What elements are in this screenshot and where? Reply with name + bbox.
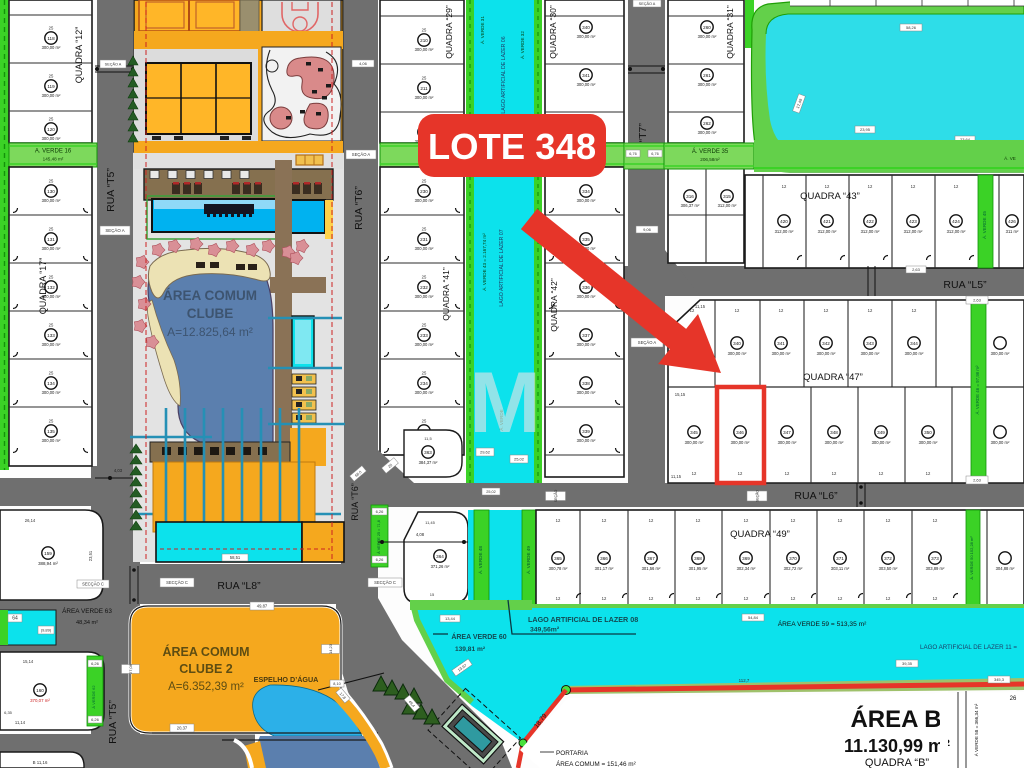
svg-text:25: 25 (49, 26, 54, 31)
svg-text:300,00 m²: 300,00 m² (42, 342, 61, 347)
svg-text:300,00 m²: 300,00 m² (415, 47, 434, 52)
svg-text:Á. VERDE 46 = 97,98 m²: Á. VERDE 46 = 97,98 m² (975, 365, 980, 414)
svg-text:302,72 m²: 302,72 m² (784, 566, 803, 571)
svg-text:4,03: 4,03 (114, 468, 123, 473)
svg-text:2,63: 2,63 (973, 298, 982, 303)
svg-text:302,34 m²: 302,34 m² (737, 566, 756, 571)
svg-text:300,00 m²: 300,00 m² (42, 198, 61, 203)
svg-text:311 m²: 311 m² (1006, 229, 1019, 234)
svg-text:6,76: 6,76 (651, 152, 658, 156)
svg-text:300,00 m²: 300,00 m² (577, 390, 596, 395)
svg-text:ÁREA COMUM: ÁREA COMUM (162, 644, 249, 659)
svg-text:RUA “T6”: RUA “T6” (350, 483, 360, 521)
svg-text:300,00 m²: 300,00 m² (772, 351, 791, 356)
svg-text:300,00 m²: 300,00 m² (825, 440, 844, 445)
svg-text:12: 12 (735, 308, 740, 313)
svg-text:341: 341 (582, 73, 590, 78)
svg-text:300,00 m²: 300,00 m² (415, 246, 434, 251)
svg-text:312,00 m²: 312,00 m² (947, 229, 966, 234)
svg-text:RUA “T5”: RUA “T5” (107, 700, 119, 744)
svg-text:LAGO ARTIFICIAL DE LAZER 11 =: LAGO ARTIFICIAL DE LAZER 11 = (920, 644, 1017, 651)
svg-text:M: M (469, 355, 541, 451)
svg-text:RUA “L6”: RUA “L6” (794, 490, 838, 502)
svg-text:12: 12 (556, 596, 561, 601)
svg-text:RUA “T6”: RUA “T6” (353, 186, 365, 230)
svg-text:300,00 m²: 300,00 m² (991, 440, 1010, 445)
svg-text:12: 12 (832, 471, 837, 476)
svg-text:300,00 m²: 300,00 m² (42, 390, 61, 395)
svg-text:304,88 m²: 304,88 m² (996, 566, 1015, 571)
svg-text:349: 349 (877, 430, 885, 435)
svg-text:PORTARIA: PORTARIA (556, 750, 589, 757)
svg-text:118: 118 (47, 36, 55, 41)
svg-text:300,00 m²: 300,00 m² (698, 82, 717, 87)
svg-text:373: 373 (931, 556, 939, 561)
svg-text:261: 261 (703, 73, 711, 78)
svg-text:312,00 m²: 312,00 m² (818, 229, 837, 234)
svg-text:12: 12 (825, 184, 830, 189)
svg-text:25,02: 25,02 (514, 457, 525, 462)
svg-text:300,00 m²: 300,00 m² (905, 351, 924, 356)
svg-text:230: 230 (420, 189, 428, 194)
svg-text:343: 343 (866, 341, 874, 346)
svg-text:Á. VERDE 32: Á. VERDE 32 (519, 31, 525, 59)
svg-text:300,00 m²: 300,00 m² (698, 130, 717, 135)
svg-text:25: 25 (422, 28, 427, 33)
svg-text:363: 363 (424, 450, 432, 455)
svg-text:SEÇÃO A: SEÇÃO A (638, 340, 657, 345)
svg-text:12: 12 (602, 518, 607, 523)
svg-text:306,37 m²: 306,37 m² (681, 203, 700, 208)
svg-text:12: 12 (912, 308, 917, 313)
svg-text:300,00 m²: 300,00 m² (919, 440, 938, 445)
svg-text:SEÇÃO: SEÇÃO (553, 490, 558, 503)
svg-text:12: 12 (868, 308, 873, 313)
svg-text:160: 160 (36, 688, 44, 693)
svg-text:A=6.352,39 m²: A=6.352,39 m² (168, 681, 244, 693)
svg-text:25: 25 (49, 74, 54, 79)
svg-text:345,3: 345,3 (994, 677, 1005, 682)
svg-text:300,00 m²: 300,00 m² (415, 198, 434, 203)
svg-text:300,00 m²: 300,00 m² (778, 440, 797, 445)
svg-text:12: 12 (838, 596, 843, 601)
svg-text:159: 159 (44, 551, 52, 556)
svg-text:262: 262 (703, 121, 711, 126)
svg-text:423: 423 (909, 219, 917, 224)
svg-text:4,08: 4,08 (416, 532, 425, 537)
svg-text:RUA “L5”: RUA “L5” (943, 279, 987, 291)
svg-text:QUADRA “31”: QUADRA “31” (725, 5, 735, 59)
svg-text:300,00 m²: 300,00 m² (415, 95, 434, 100)
svg-text:372: 372 (884, 556, 892, 561)
svg-text:300,00 m²: 300,00 m² (872, 440, 891, 445)
svg-text:301,56 m²: 301,56 m² (642, 566, 661, 571)
svg-text:300,00 m²: 300,00 m² (577, 294, 596, 299)
svg-text:232: 232 (420, 285, 428, 290)
svg-text:303,50 m²: 303,50 m² (879, 566, 898, 571)
svg-text:300,00 m²: 300,00 m² (415, 342, 434, 347)
svg-text:339: 339 (582, 429, 590, 434)
svg-text:316: 316 (686, 194, 694, 199)
svg-text:QUADRA “29”: QUADRA “29” (444, 5, 454, 59)
svg-text:13,44: 13,44 (445, 616, 456, 621)
svg-text:300,00 m²: 300,00 m² (415, 390, 434, 395)
svg-text:421: 421 (823, 219, 831, 224)
svg-text:6,35: 6,35 (4, 710, 13, 715)
svg-text:420: 420 (780, 219, 788, 224)
svg-text:300,00 m²: 300,00 m² (42, 93, 61, 98)
svg-text:422: 422 (866, 219, 874, 224)
svg-text:130: 130 (47, 189, 55, 194)
svg-text:300,00 m²: 300,00 m² (991, 351, 1010, 356)
svg-text:9,06: 9,06 (643, 227, 652, 232)
svg-text:6,26: 6,26 (376, 509, 385, 514)
svg-text:QUADRA “41”: QUADRA “41” (441, 267, 451, 321)
svg-text:342: 342 (822, 341, 830, 346)
svg-text:303,11 m²: 303,11 m² (831, 566, 850, 571)
svg-text:336: 336 (582, 285, 590, 290)
svg-text:367: 367 (647, 556, 655, 561)
svg-text:11,15: 11,15 (671, 474, 682, 479)
svg-text:341: 341 (777, 341, 785, 346)
svg-text:424: 424 (952, 219, 960, 224)
svg-text:12: 12 (696, 596, 701, 601)
svg-text:ÁREA VERDE 60: ÁREA VERDE 60 (451, 632, 506, 641)
svg-text:11,5: 11,5 (424, 436, 432, 441)
svg-text:64: 64 (12, 616, 18, 622)
svg-text:12: 12 (782, 184, 787, 189)
svg-text:388,94 m²: 388,94 m² (38, 561, 58, 566)
svg-text:11,14: 11,14 (15, 720, 26, 725)
svg-text:12: 12 (692, 471, 697, 476)
svg-text:12: 12 (779, 308, 784, 313)
svg-text:12: 12 (838, 518, 843, 523)
svg-text:ÁREA VERDE 63: ÁREA VERDE 63 (62, 606, 112, 615)
svg-text:ÁREA VERDE 59 = 513,35 m²: ÁREA VERDE 59 = 513,35 m² (778, 619, 867, 628)
svg-text:6,26: 6,26 (376, 557, 385, 562)
svg-text:300,00 m²: 300,00 m² (728, 351, 747, 356)
svg-text:ÁREA B: ÁREA B (850, 705, 941, 733)
svg-text:312,00 m²: 312,00 m² (718, 203, 737, 208)
svg-text:11,45: 11,45 (425, 520, 435, 525)
svg-text:300,00 m²: 300,00 m² (577, 34, 596, 39)
svg-text:12: 12 (791, 518, 796, 523)
svg-text:Á. VERDE 49: Á. VERDE 49 (525, 546, 531, 574)
svg-text:QUADRA “12”: QUADRA “12” (74, 27, 84, 84)
svg-text:LOTE 348: LOTE 348 (428, 126, 596, 167)
svg-text:300,00 m²: 300,00 m² (577, 82, 596, 87)
svg-text:54,84: 54,84 (748, 615, 759, 620)
svg-text:347: 347 (783, 430, 791, 435)
svg-text:QUADRA “30”: QUADRA “30” (548, 5, 558, 59)
svg-text:LAGO ARTIFICIAL DE LAZER 06: LAGO ARTIFICIAL DE LAZER 06 (501, 36, 507, 113)
svg-text:Á VERDE 58 = 366,34 m²: Á VERDE 58 = 366,34 m² (973, 703, 979, 756)
svg-text:25: 25 (49, 179, 54, 184)
svg-text:134: 134 (47, 381, 55, 386)
svg-text:303,89 m²: 303,89 m² (926, 566, 945, 571)
svg-text:346: 346 (736, 430, 744, 435)
svg-text:25,02: 25,02 (486, 490, 496, 494)
svg-text:SEÇÃO A: SEÇÃO A (639, 1, 656, 6)
svg-text:12: 12 (824, 308, 829, 313)
svg-text:300,00 m²: 300,00 m² (415, 294, 434, 299)
svg-text:Á VERDE 25 = 71,8: Á VERDE 25 = 71,8 (377, 520, 381, 554)
svg-text:300,00 m²: 300,00 m² (42, 45, 61, 50)
svg-text:15,14: 15,14 (23, 659, 34, 664)
svg-text:233: 233 (420, 333, 428, 338)
svg-text:48,34 m²: 48,34 m² (76, 620, 98, 626)
svg-text:Á. VERDE 31: Á. VERDE 31 (479, 16, 485, 44)
svg-text:25: 25 (422, 419, 427, 424)
svg-text:(9,89): (9,89) (41, 628, 52, 633)
svg-text:12: 12 (911, 184, 916, 189)
svg-text:12: 12 (649, 596, 654, 601)
svg-text:A=12.825,64 m²: A=12.825,64 m² (167, 325, 253, 339)
svg-text:119: 119 (47, 84, 55, 89)
svg-text:Á. VERDE 50 152,28 m²: Á. VERDE 50 152,28 m² (969, 536, 974, 580)
svg-text:426: 426 (1008, 219, 1016, 224)
svg-text:12: 12 (933, 518, 938, 523)
svg-text:231: 231 (420, 237, 428, 242)
svg-text:15,15: 15,15 (675, 392, 686, 397)
svg-text:364: 364 (436, 554, 444, 559)
svg-text:11,15: 11,15 (695, 304, 706, 309)
svg-text:301,95 m²: 301,95 m² (689, 566, 708, 571)
svg-text:25: 25 (49, 323, 54, 328)
svg-text:300,00 m²: 300,00 m² (698, 34, 717, 39)
svg-text:SEÇÃO A: SEÇÃO A (105, 62, 122, 67)
svg-text:Á. VERDE 48: Á. VERDE 48 (477, 546, 483, 574)
svg-text:260: 260 (703, 25, 711, 30)
svg-text:349,56m²: 349,56m² (530, 627, 560, 634)
svg-text:350: 350 (924, 430, 932, 435)
svg-text:312,00 m²: 312,00 m² (861, 229, 880, 234)
svg-text:300,00 m²: 300,00 m² (731, 440, 750, 445)
svg-text:348: 348 (830, 430, 838, 435)
svg-text:300,00 m²: 300,00 m² (42, 246, 61, 251)
svg-text:12: 12 (649, 518, 654, 523)
svg-text:335: 335 (582, 237, 590, 242)
svg-text:25: 25 (49, 227, 54, 232)
svg-text:139,81 m²: 139,81 m² (455, 646, 486, 653)
svg-text:12: 12 (886, 596, 891, 601)
svg-text:300,00 m²: 300,00 m² (685, 440, 704, 445)
svg-text:338: 338 (582, 381, 590, 386)
svg-text:A. VERDE 16: A. VERDE 16 (35, 149, 72, 155)
svg-text:SEÇÃO: SEÇÃO (755, 490, 760, 502)
svg-text:Á. VERDE 43 = 2.167,74 m²: Á. VERDE 43 = 2.167,74 m² (481, 233, 487, 291)
svg-text:QUADRA “43”: QUADRA “43” (800, 191, 860, 202)
svg-text:14,23: 14,23 (328, 643, 333, 654)
svg-text:26: 26 (1010, 696, 1017, 702)
svg-text:369: 369 (742, 556, 750, 561)
svg-text:23,51: 23,51 (88, 550, 93, 561)
svg-text:340: 340 (733, 341, 741, 346)
svg-text:368: 368 (694, 556, 702, 561)
svg-text:SEÇÃO A: SEÇÃO A (352, 152, 371, 157)
svg-text:315: 315 (723, 194, 731, 199)
svg-text:25: 25 (49, 419, 54, 424)
svg-text:12: 12 (933, 596, 938, 601)
svg-text:ESPELHO D’ÁGUA: ESPELHO D’ÁGUA (254, 675, 319, 684)
svg-text:300,78 m²: 300,78 m² (549, 566, 568, 571)
svg-text:39,35: 39,35 (902, 661, 913, 666)
svg-text:210: 210 (420, 38, 428, 43)
svg-text:300,00 m²: 300,00 m² (42, 136, 61, 141)
svg-text:12: 12 (556, 518, 561, 523)
svg-text:300,00 m²: 300,00 m² (577, 438, 596, 443)
svg-text:12: 12 (868, 184, 873, 189)
svg-text:211: 211 (420, 86, 428, 91)
svg-text:12: 12 (879, 471, 884, 476)
svg-text:131: 131 (47, 237, 55, 242)
svg-text:25: 25 (49, 117, 54, 122)
svg-text:135: 135 (47, 429, 55, 434)
svg-text:Á. VE: Á. VE (1004, 155, 1016, 161)
svg-text:25: 25 (422, 179, 427, 184)
svg-text:SECÇÃO C: SECÇÃO C (166, 580, 188, 585)
svg-text:371,26 m²: 371,26 m² (431, 564, 450, 569)
svg-text:QUADRA “B”: QUADRA “B” (865, 757, 930, 768)
svg-text:334: 334 (582, 189, 590, 194)
svg-text:SECÇÃO C: SECÇÃO C (82, 582, 104, 587)
svg-text:25: 25 (422, 323, 427, 328)
svg-text:12: 12 (744, 518, 749, 523)
svg-text:SEÇÃO A: SEÇÃO A (105, 228, 124, 233)
svg-text:370: 370 (789, 556, 797, 561)
svg-text:366: 366 (600, 556, 608, 561)
svg-text:12: 12 (886, 518, 891, 523)
svg-text:112,7: 112,7 (739, 678, 750, 683)
svg-text:58,51: 58,51 (230, 555, 241, 560)
svg-text:25: 25 (49, 275, 54, 280)
svg-text:12: 12 (738, 471, 743, 476)
svg-text:CLUBE 2: CLUBE 2 (179, 662, 233, 676)
svg-text:206,58m²: 206,58m² (700, 157, 720, 162)
svg-text:LAGO ARTIFICIAL DE LAZER 08: LAGO ARTIFICIAL DE LAZER 08 (528, 615, 638, 624)
svg-text:365: 365 (554, 556, 562, 561)
svg-text:301,17 m²: 301,17 m² (595, 566, 614, 571)
svg-text:25: 25 (422, 227, 427, 232)
svg-text:312,00 m²: 312,00 m² (775, 229, 794, 234)
svg-text:145,48 m²: 145,48 m² (43, 157, 64, 162)
svg-text:6,26: 6,26 (91, 661, 100, 666)
svg-text:300,00 m²: 300,00 m² (577, 342, 596, 347)
svg-text:132: 132 (47, 285, 55, 290)
svg-text:QUADRA “49”: QUADRA “49” (730, 529, 790, 540)
svg-text:26,14: 26,14 (25, 518, 36, 523)
svg-text:120: 120 (47, 127, 55, 132)
svg-text:Á. VERDE 35: Á. VERDE 35 (692, 148, 729, 155)
svg-text:ÁREA COMUM: ÁREA COMUM (163, 288, 257, 303)
svg-text:QUADRA “42”: QUADRA “42” (549, 278, 559, 332)
svg-text:2,63: 2,63 (912, 267, 921, 272)
svg-text:12: 12 (785, 471, 790, 476)
svg-text:312,00 m²: 312,00 m² (904, 229, 923, 234)
svg-text:Á. VERDE 45: Á. VERDE 45 (981, 211, 987, 239)
svg-text:345: 345 (690, 430, 698, 435)
svg-text:337: 337 (582, 333, 590, 338)
svg-text:12: 12 (954, 184, 959, 189)
svg-text:12: 12 (696, 518, 701, 523)
svg-text:RUA “T5”: RUA “T5” (105, 168, 117, 212)
svg-text:25: 25 (49, 371, 54, 376)
svg-text:300,00 m²: 300,00 m² (817, 351, 836, 356)
svg-text:300,00 m²: 300,00 m² (42, 438, 61, 443)
svg-text:344: 344 (910, 341, 918, 346)
svg-text:12: 12 (602, 596, 607, 601)
svg-text:300,00 m²: 300,00 m² (577, 198, 596, 203)
svg-text:371: 371 (836, 556, 844, 561)
svg-text:23,95: 23,95 (860, 127, 871, 132)
svg-text:RUA “L8”: RUA “L8” (217, 580, 261, 592)
svg-text:8,10: 8,10 (333, 682, 340, 686)
svg-text:25: 25 (422, 371, 427, 376)
svg-text:25: 25 (422, 76, 427, 81)
svg-text:SECÇÃO C: SECÇÃO C (374, 580, 396, 585)
svg-text:QUADRA “47”: QUADRA “47” (803, 372, 863, 383)
svg-text:LAGO ARTIFICIAL DE LAZER 07: LAGO ARTIFICIAL DE LAZER 07 (499, 229, 505, 306)
svg-text:340: 340 (582, 25, 590, 30)
svg-text:ÁREA COMUM = 151,46 m²: ÁREA COMUM = 151,46 m² (556, 759, 636, 768)
svg-text:B 11,16: B 11,16 (33, 760, 48, 765)
svg-text:370,07 m²: 370,07 m² (30, 698, 50, 703)
svg-text:Á VERDE 62: Á VERDE 62 (91, 685, 96, 709)
svg-text:25: 25 (422, 275, 427, 280)
svg-text:15: 15 (430, 592, 435, 597)
svg-text:12: 12 (744, 596, 749, 601)
svg-text:4,06: 4,06 (359, 61, 368, 66)
svg-text:12: 12 (926, 471, 931, 476)
svg-text:11.130,99 m²: 11.130,99 m² (844, 736, 950, 756)
svg-text:58,26: 58,26 (906, 25, 917, 30)
svg-text:27,06: 27,06 (128, 663, 133, 674)
svg-text:6,76: 6,76 (629, 152, 636, 156)
svg-text:20,37: 20,37 (177, 726, 188, 731)
svg-text:CLUBE: CLUBE (187, 306, 234, 321)
svg-text:384,37 m²: 384,37 m² (419, 460, 438, 465)
svg-text:12: 12 (791, 596, 796, 601)
svg-text:133: 133 (47, 333, 55, 338)
svg-text:49,87: 49,87 (257, 604, 268, 609)
svg-text:234: 234 (420, 381, 428, 386)
svg-text:300,00 m²: 300,00 m² (861, 351, 880, 356)
svg-text:6,26: 6,26 (91, 717, 100, 722)
svg-text:QUADRA “17”: QUADRA “17” (38, 258, 48, 315)
svg-text:2,63: 2,63 (973, 478, 982, 483)
